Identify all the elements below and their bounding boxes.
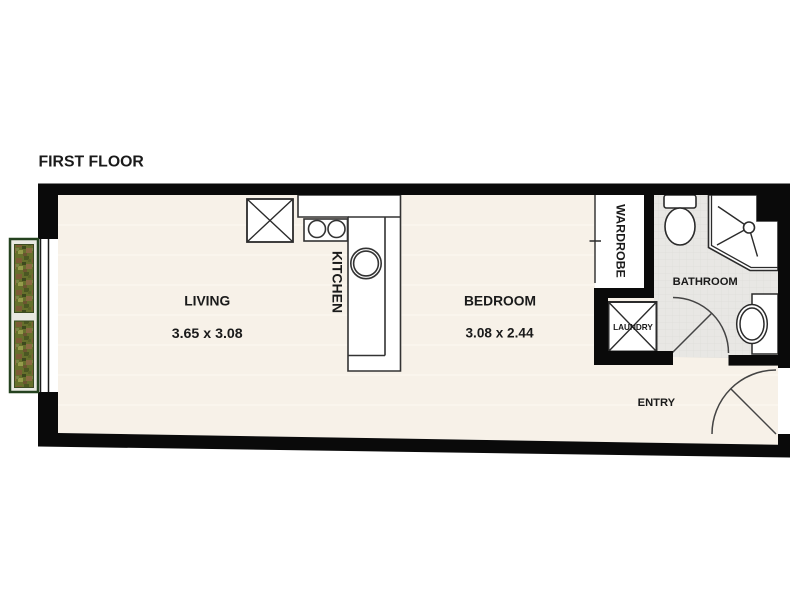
svg-text:BATHROOM: BATHROOM <box>673 276 738 288</box>
svg-text:3.65 x 3.08: 3.65 x 3.08 <box>172 326 243 342</box>
svg-text:3.08 x 2.44: 3.08 x 2.44 <box>465 325 533 340</box>
svg-text:LAUNDRY: LAUNDRY <box>613 323 653 332</box>
svg-text:WARDROBE: WARDROBE <box>614 204 628 278</box>
svg-text:ENTRY: ENTRY <box>638 397 676 409</box>
svg-text:KITCHEN: KITCHEN <box>330 251 346 313</box>
svg-text:BEDROOM: BEDROOM <box>464 293 536 308</box>
svg-text:FIRST FLOOR: FIRST FLOOR <box>39 154 145 171</box>
svg-text:LIVING: LIVING <box>184 293 230 308</box>
